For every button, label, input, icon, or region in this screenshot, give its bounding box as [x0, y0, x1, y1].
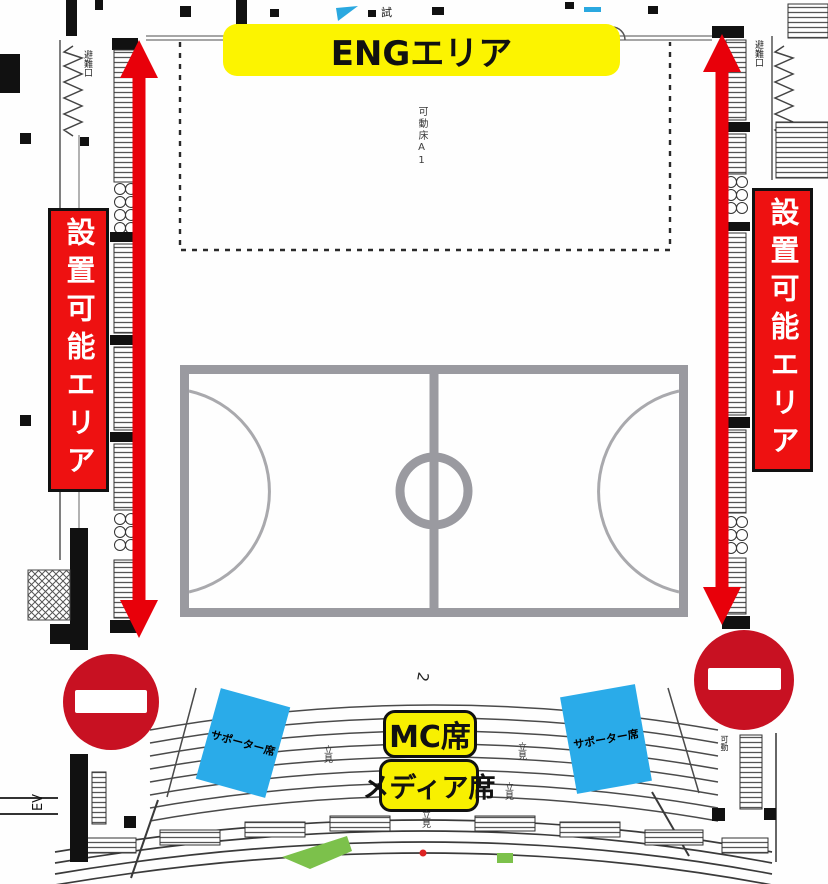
- futsal-court: [185, 370, 684, 613]
- right-walls: [772, 4, 828, 180]
- standing-room-label: 立見: [516, 742, 525, 760]
- mc-seat-label: MC席: [383, 710, 477, 758]
- supporter-seat-left-label: サポーター席: [209, 726, 277, 759]
- emergency-exit-label-left: 避難口: [82, 50, 91, 77]
- install-area-banner-right: 設置可能エリア: [752, 188, 813, 472]
- media-seat-label: メディア席: [379, 759, 479, 812]
- install-area-banner-right-label: 設置可能エリア: [768, 197, 797, 463]
- emergency-exit-label-right: 避難口: [753, 40, 762, 67]
- supporter-seat-right-label: サポーター席: [572, 725, 640, 752]
- movable-floor-label: 可動床A1: [416, 106, 426, 168]
- plan-text-fragment: 試: [381, 4, 392, 20]
- venue-floorplan: ENGエリア 設置可能エリア 設置可能エリア サポーター席 サポーター席 MC席…: [0, 0, 828, 884]
- install-area-banner-left-label: 設置可能エリア: [64, 217, 93, 483]
- top-plan-marks: [95, 0, 658, 21]
- standing-room-label: 立見: [322, 745, 331, 763]
- no-entry-sign-left: [63, 654, 159, 750]
- install-area-banner-left: 設置可能エリア: [48, 208, 109, 492]
- elevator-label: EV: [31, 794, 46, 811]
- left-stairs-zigzag: [64, 46, 82, 136]
- eng-area-banner: ENGエリア: [223, 24, 620, 76]
- standing-room-label: 立見: [503, 782, 512, 800]
- standing-room-label: 立見: [420, 810, 429, 828]
- movable-label: 可動: [720, 735, 728, 751]
- no-entry-sign-right: [694, 630, 794, 730]
